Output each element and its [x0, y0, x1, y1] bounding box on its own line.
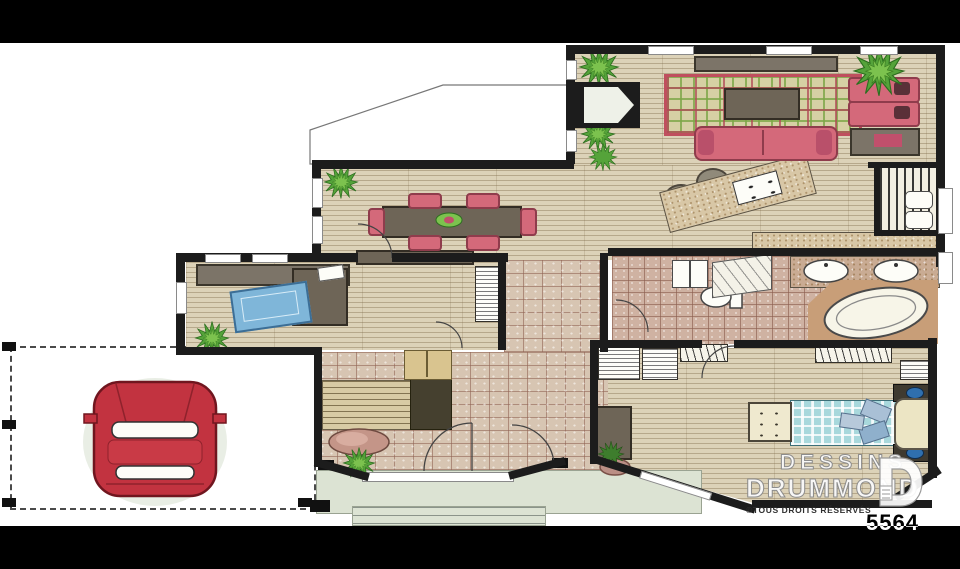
wall: [314, 347, 322, 467]
entry-sidelight-window: [362, 472, 514, 482]
wall: [734, 340, 937, 348]
window: [312, 216, 323, 244]
bedroom-closet-louver: [642, 348, 678, 380]
dining-chair: [408, 235, 442, 251]
dining-chair: [408, 193, 442, 209]
car-mirror-left: [84, 414, 97, 423]
sofa-arm-right: [816, 130, 832, 155]
car-rear-window: [116, 466, 194, 479]
car-mirror-right: [213, 414, 226, 423]
dining-chair: [368, 208, 385, 236]
carport-post: [2, 498, 16, 507]
kitchen-sink-bowl: [905, 191, 933, 209]
porch-post: [310, 500, 330, 512]
bed-headboard: [894, 398, 932, 450]
entry-closet-doors: [404, 350, 452, 380]
laundry-unit: [672, 260, 690, 288]
pillow: [839, 412, 865, 430]
wall: [312, 160, 574, 169]
closet-door-split: [426, 351, 428, 377]
bedroom-dresser: [748, 402, 792, 442]
wall: [590, 340, 702, 348]
wall: [498, 260, 506, 350]
desk-mat-inner: [240, 290, 299, 322]
laundry-unit: [690, 260, 708, 288]
bath-window-bay: [938, 252, 953, 284]
window: [766, 46, 812, 55]
plant: [588, 142, 618, 172]
wall: [608, 248, 938, 256]
sofa-cushion-split: [762, 130, 764, 155]
kitchen-sink-bowl: [905, 211, 933, 229]
car-roof: [108, 440, 202, 464]
carport-post: [2, 420, 16, 429]
wall: [176, 347, 322, 355]
end-table-decor: [874, 134, 902, 147]
dining-chair: [466, 235, 500, 251]
window: [860, 46, 898, 55]
window: [205, 254, 241, 263]
window: [176, 282, 187, 314]
bottom-letterbox-bar: [0, 526, 960, 569]
plan-number: 5564: [866, 510, 919, 536]
papers: [317, 264, 345, 281]
hallway-tile-floor: [504, 260, 604, 352]
sofa: [694, 126, 838, 161]
dining-chair: [466, 193, 500, 209]
porch-steps: [352, 506, 546, 526]
drummond-d-logo: [874, 456, 924, 508]
wall: [590, 348, 598, 464]
car-windshield: [112, 422, 198, 438]
window: [252, 254, 288, 263]
dining-chair: [520, 208, 537, 236]
kitchen-window-bay: [938, 188, 953, 234]
garage-roof-outline: [306, 70, 578, 174]
table-centerpiece: [434, 210, 464, 230]
end-table: [850, 128, 920, 156]
stair-railing: [410, 378, 452, 430]
armchair-cushion: [894, 106, 910, 119]
window: [648, 46, 694, 55]
window: [566, 130, 577, 152]
main-staircase: [322, 380, 412, 430]
coffee-table: [724, 88, 800, 120]
wall: [600, 253, 608, 352]
top-letterbox-bar: [0, 0, 960, 43]
sofa-arm-left: [698, 130, 714, 155]
cooktop: [732, 170, 783, 205]
media-console: [694, 56, 838, 72]
wall: [392, 253, 508, 262]
car-top-view: [82, 372, 228, 506]
stair-wall: [868, 162, 938, 168]
hall-closet-louver: [475, 266, 499, 322]
floor-plan-scan: DESSINS DRUMMOND ©TOUS DROITS RÉSERVÉS 5…: [0, 0, 960, 569]
vanity-sinks: [800, 258, 930, 284]
armchair: [848, 101, 920, 127]
carport-post: [2, 342, 16, 351]
window: [566, 60, 577, 80]
plant: [318, 164, 364, 200]
window: [312, 178, 323, 208]
corner-bathtub: [818, 284, 934, 342]
